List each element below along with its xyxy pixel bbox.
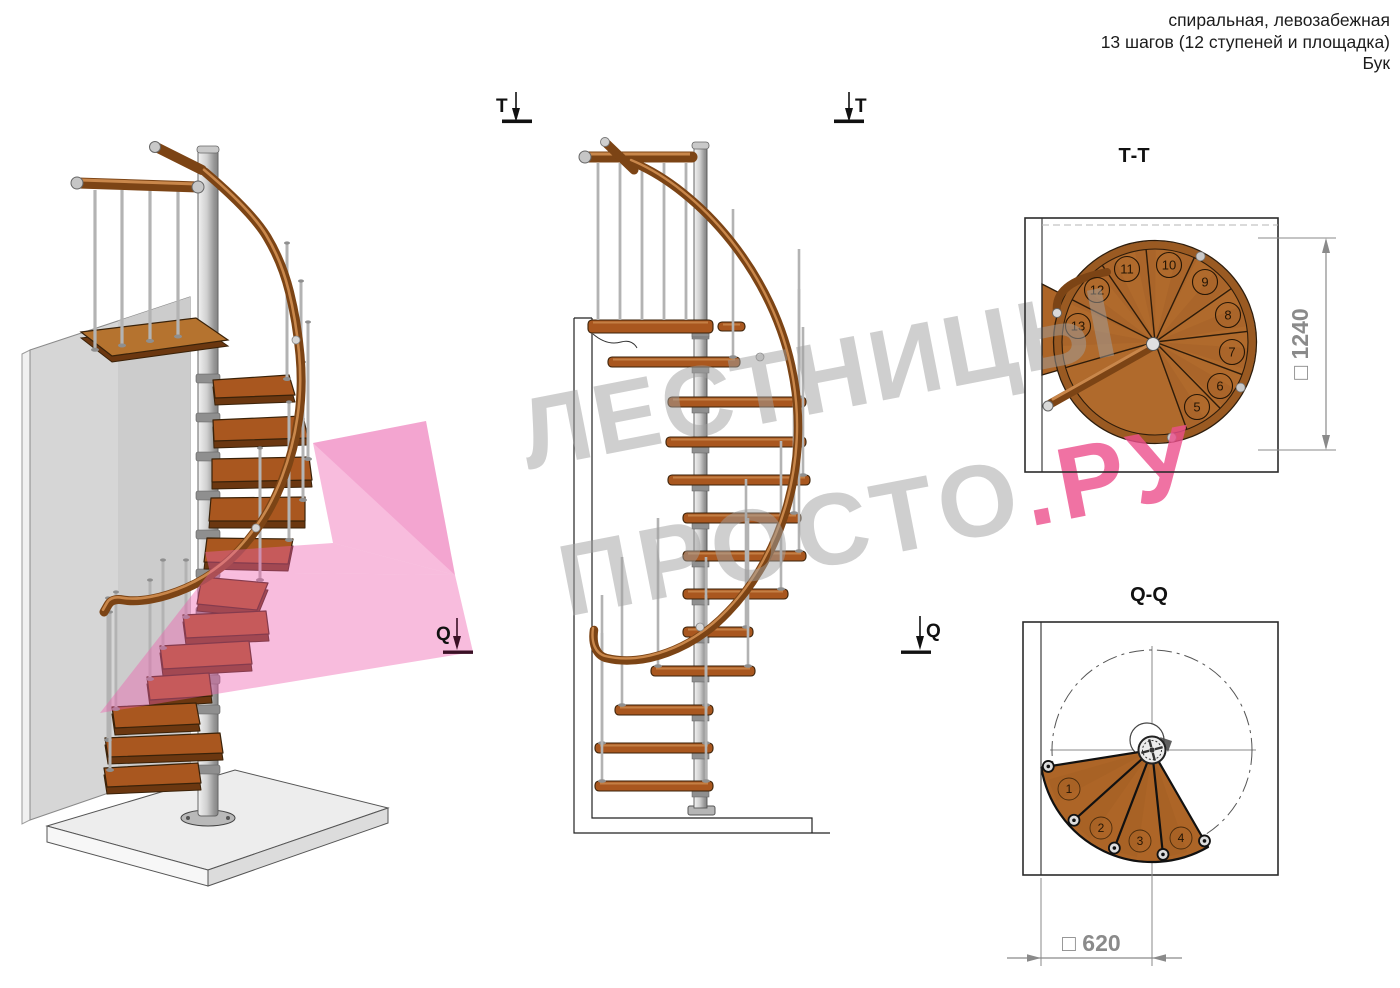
qq-dimension-620: □ 620 [1007, 868, 1182, 966]
step-number-label: 8 [1224, 308, 1231, 323]
section-marker-t-right: Т [834, 92, 867, 123]
step-number-label: 2 [1098, 821, 1105, 835]
step-number-label: 10 [1162, 258, 1176, 273]
rail-connector [1196, 252, 1205, 261]
step-number-label: 11 [1120, 262, 1134, 277]
dim-arrow-icon [1322, 435, 1330, 450]
dim-arrow-icon [1027, 954, 1041, 962]
step-number-label: 6 [1216, 379, 1223, 394]
step-number-label: 7 [1228, 345, 1235, 360]
marker-q-label: Q [436, 624, 451, 645]
marker-q-label: Q [926, 621, 941, 642]
section-qq-plan: 1234 [1041, 646, 1256, 868]
staircase-drawing: 5678910111213 1234 ЛЕСТНИЦЫ ПРОСТО.РУ Т … [0, 0, 1400, 988]
step-number-label: 4 [1178, 831, 1185, 845]
section-marker-t-left: Т [496, 92, 532, 123]
pole-collar [196, 705, 220, 714]
step-number-label: 3 [1137, 834, 1144, 848]
step-number-label: 1 [1066, 782, 1073, 796]
tt-dimension-label: □ 1240 [1287, 308, 1313, 379]
handrail-end [158, 148, 202, 170]
dim-arrow-icon [1322, 238, 1330, 253]
rail-connector [1236, 383, 1245, 392]
tread [213, 375, 295, 398]
drawing-sheet: 5678910111213 1234 ЛЕСТНИЦЫ ПРОСТО.РУ Т … [0, 0, 1400, 988]
dim-arrow-icon [1152, 954, 1166, 962]
step-number-label: 5 [1193, 400, 1200, 415]
marker-t-label: Т [496, 96, 508, 117]
qq-dimension-label: □ 620 [1062, 930, 1121, 956]
pole-collar [692, 791, 709, 797]
stair-type-label: спиральная, левозабежная [1101, 10, 1390, 32]
section-arrow-icon [916, 636, 924, 650]
title-block: спиральная, левозабежная 13 шагов (12 ст… [1101, 10, 1390, 75]
rail-connector [292, 336, 300, 344]
tt-dimension-1240: □ 1240 [1258, 238, 1336, 450]
section-marker-q-right: Q [901, 616, 941, 654]
steps-count-label: 13 шагов (12 ступеней и площадка) [1101, 32, 1390, 54]
newel-ball [1147, 338, 1160, 351]
pole-collar [692, 485, 709, 491]
material-label: Бук [1101, 53, 1390, 75]
marker-t-label: Т [855, 96, 867, 117]
rail-connector [252, 524, 260, 532]
tt-plan-title: Т-Т [1118, 145, 1149, 167]
qq-plan-title: Q-Q [1130, 584, 1168, 606]
tread [209, 497, 305, 521]
step-number-label: 9 [1201, 275, 1208, 290]
tread [212, 457, 312, 482]
wall-panel [22, 350, 30, 824]
tread [718, 322, 745, 331]
site-watermark: ЛЕСТНИЦЫ ПРОСТО.РУ [511, 255, 1210, 640]
rail-connector [696, 623, 704, 631]
